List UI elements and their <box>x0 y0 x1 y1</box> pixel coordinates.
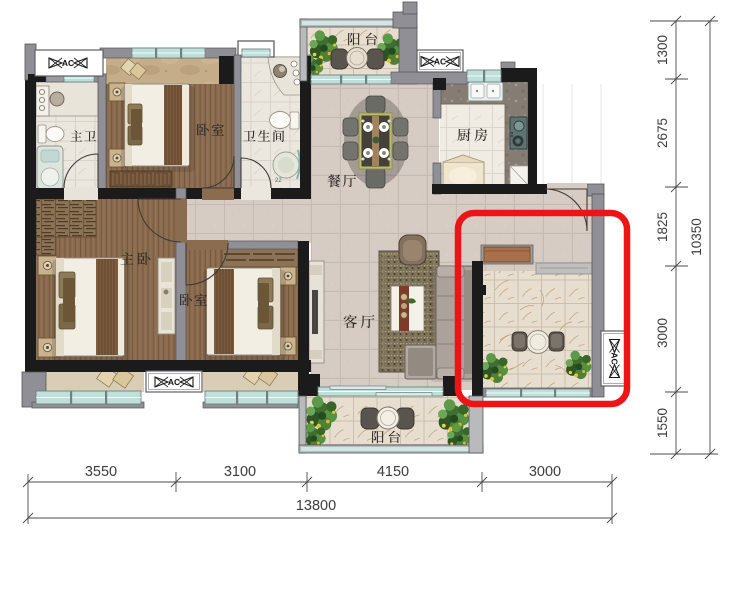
svg-text:3000: 3000 <box>529 464 561 480</box>
svg-text:1550: 1550 <box>655 408 670 438</box>
svg-text:3550: 3550 <box>85 464 117 480</box>
svg-text:3100: 3100 <box>224 464 256 480</box>
svg-text:2675: 2675 <box>655 118 670 148</box>
svg-text:13800: 13800 <box>296 498 336 514</box>
svg-text:22: 22 <box>275 178 282 184</box>
svg-text:1825: 1825 <box>655 212 670 242</box>
svg-text:3000: 3000 <box>655 318 670 348</box>
svg-text:10350: 10350 <box>689 218 704 256</box>
svg-text:4150: 4150 <box>377 464 409 480</box>
svg-text:1300: 1300 <box>655 35 670 65</box>
